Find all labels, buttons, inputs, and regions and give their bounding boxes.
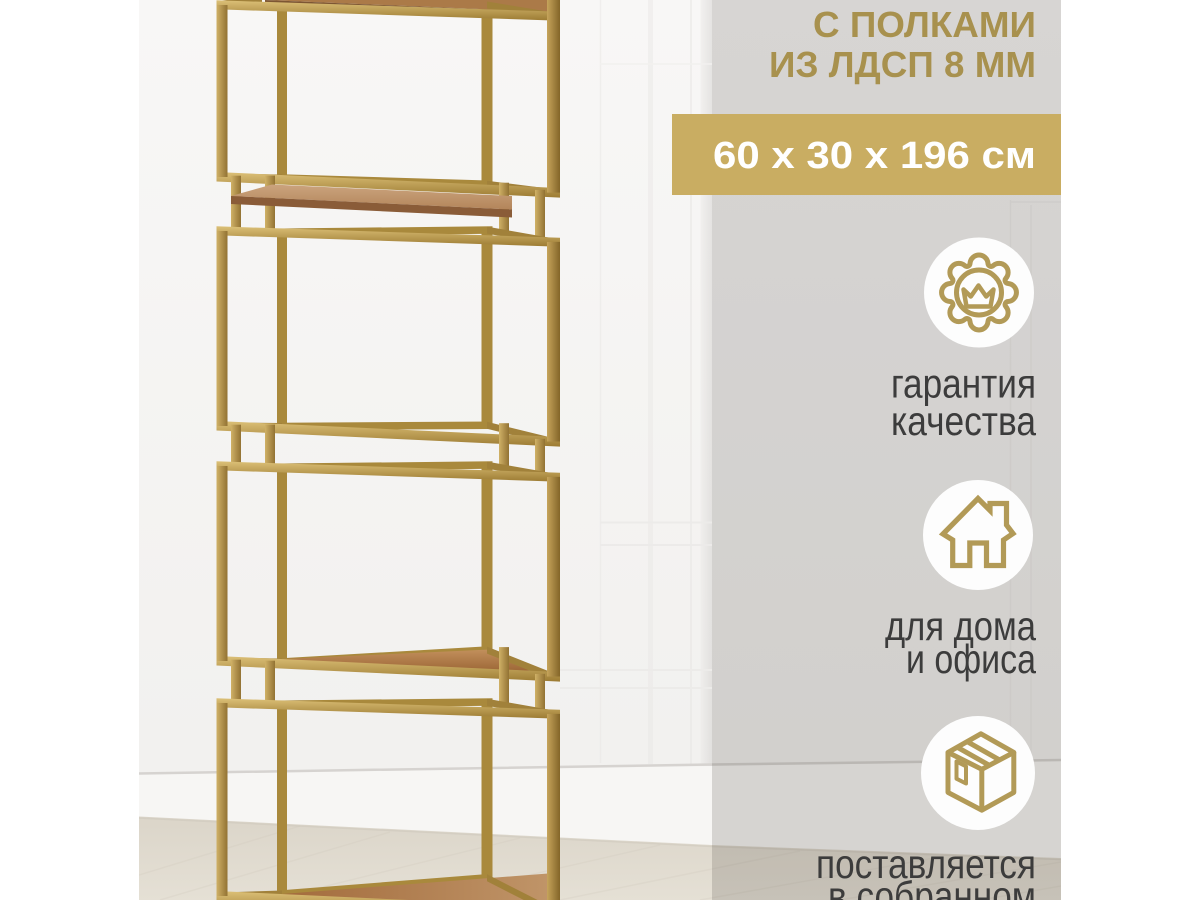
svg-text:в собранном: в собранном xyxy=(828,873,1036,900)
svg-text:ИЗ ЛДСП 8 ММ: ИЗ ЛДСП 8 ММ xyxy=(769,44,1036,85)
svg-text:качества: качества xyxy=(891,398,1036,444)
svg-text:60 х 30 х 196 см: 60 х 30 х 196 см xyxy=(713,135,1036,177)
svg-text:С ПОЛКАМИ: С ПОЛКАМИ xyxy=(813,4,1036,45)
svg-text:и офиса: и офиса xyxy=(906,636,1036,682)
